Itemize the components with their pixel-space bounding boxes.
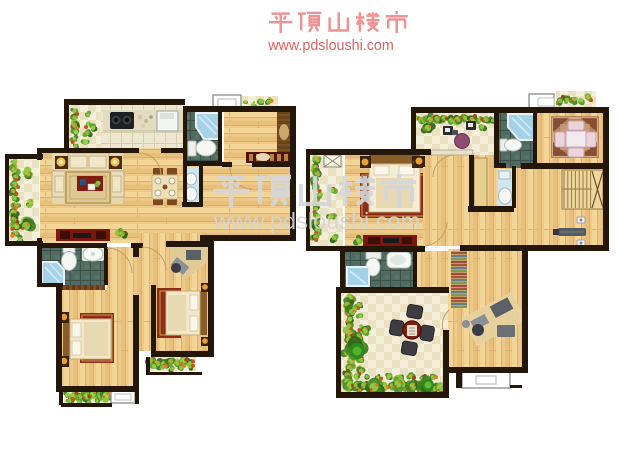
svg-text:www.pdsloushi.com: www.pdsloushi.com (213, 208, 420, 234)
svg-text:www.pdsloushi.com: www.pdsloushi.com (267, 38, 394, 54)
